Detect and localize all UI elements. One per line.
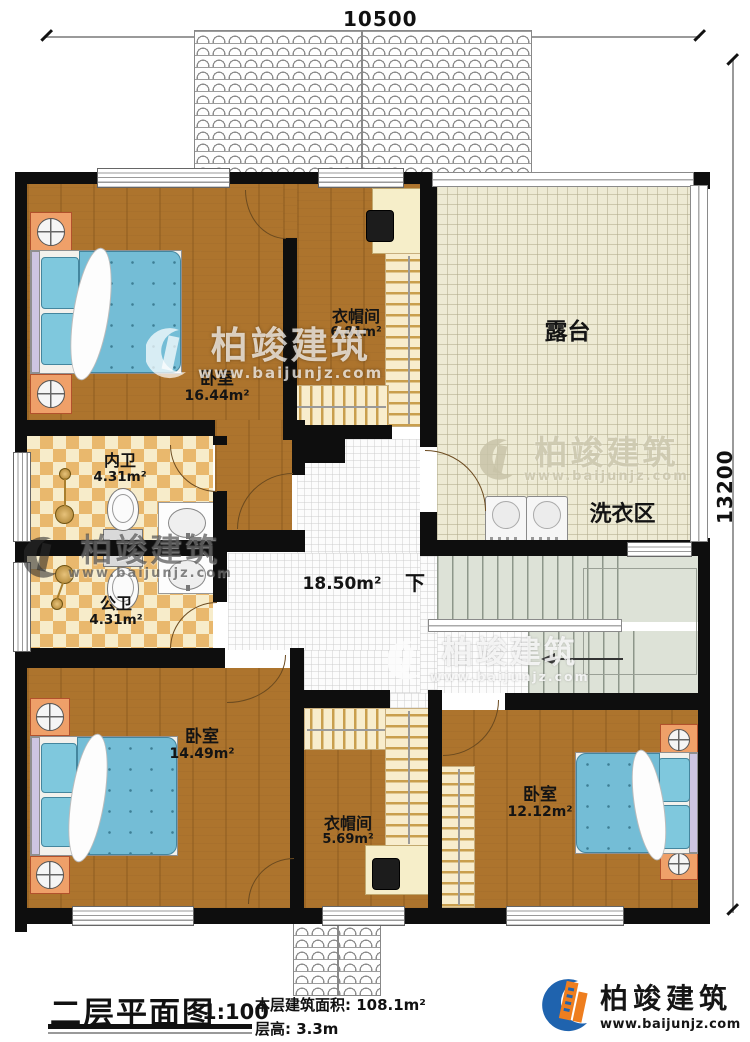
hall-floor [297,650,420,693]
closet [293,385,389,427]
window [318,168,404,188]
room-label-laundry: 洗衣区 [570,503,675,528]
window [506,906,624,926]
wall [283,238,297,440]
terrace-railing [432,172,694,187]
wall [15,648,225,668]
roof-tiles-top [194,30,532,174]
dimension-height-label: 13200 [713,454,737,524]
room-label-cloakroom-top: 衣帽间6.81m² [300,308,412,340]
wall [213,491,227,602]
brand-logo-icon [540,976,592,1032]
room-label-bath-inner: 内卫4.31m² [72,452,168,485]
brand-name: 柏竣建筑 [600,977,741,1017]
roof-ridge-line [337,923,339,995]
wall [213,436,227,445]
wall [428,690,442,908]
hall-floor [228,553,420,650]
room-label-cloakroom-bottom: 衣帽间5.69m² [292,815,404,847]
window [322,906,405,926]
room-label-bedroom-bl: 卧室14.49m² [145,728,259,763]
wall [420,172,437,447]
stairs-direction-line [553,658,623,660]
closet [440,766,475,908]
sink-counter [158,553,214,594]
window [72,906,194,926]
floor-area-stat: 本层建筑面积: 108.1m² [255,994,426,1015]
wall [528,693,710,710]
sink-counter [158,502,214,543]
shower-rod [64,478,66,506]
brand-url: www.baijunjz.com [600,1017,741,1032]
wall [297,425,392,439]
toilet [103,488,141,544]
chair [372,858,400,890]
wall [297,439,345,463]
nightstand [30,856,70,894]
floor-plan-page: 10500 13200 [0,0,750,1042]
washing-machine [526,496,568,545]
room-label-hall-area: 18.50m² [292,575,392,594]
brand-block: 柏竣建筑 www.baijunjz.com [540,976,741,1032]
window [97,168,230,188]
nightstand [30,698,70,736]
title-underline [48,1024,252,1029]
wall [304,690,390,708]
closet [304,708,388,750]
shower-valve [55,505,74,524]
room-label-terrace: 露台 [520,320,615,346]
roof-tiles-bottom [293,922,381,996]
wall [15,420,215,436]
wall [505,693,528,710]
hall-floor [437,630,528,693]
dimension-width-label: 10500 [343,8,418,30]
floor-height-stat: 层高: 3.3m [255,1018,338,1039]
wall [698,538,710,924]
window [13,452,31,542]
washing-machine [485,496,527,545]
stairs-direction-arrow-icon [541,653,555,665]
shower-valve [55,565,74,584]
stairs-handrail [428,619,622,632]
window [627,542,692,557]
title-underline-thin [48,1032,252,1034]
terrace-railing [690,185,708,542]
room-label-bedroom-br: 卧室12.12m² [485,786,595,821]
roof-ridge-line [361,31,363,173]
room-label-bedroom-tl: 卧室16.44m² [155,370,279,405]
stairs-down-label: 下 [400,572,430,594]
window [13,562,31,652]
chair [366,210,394,242]
bed [30,250,182,374]
nightstand [30,212,72,252]
hall-floor [390,693,428,708]
room-label-bath-public: 公卫4.31m² [68,595,164,628]
wall [15,540,213,556]
nightstand [30,374,72,414]
